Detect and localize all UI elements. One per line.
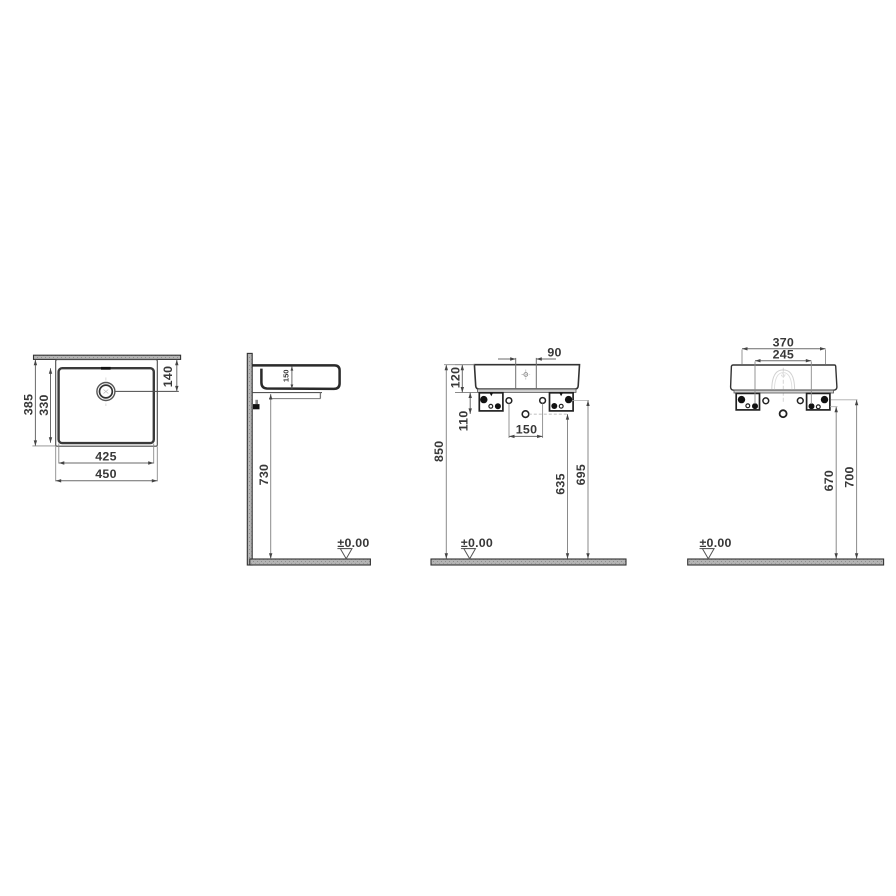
svg-text:700: 700 bbox=[843, 466, 857, 487]
svg-text:695: 695 bbox=[574, 464, 588, 485]
svg-text:140: 140 bbox=[161, 366, 175, 387]
svg-text:330: 330 bbox=[37, 394, 51, 415]
svg-text:90: 90 bbox=[547, 346, 561, 360]
svg-text:450: 450 bbox=[95, 467, 116, 481]
svg-text:245: 245 bbox=[773, 347, 794, 361]
svg-text:110: 110 bbox=[456, 411, 470, 432]
svg-text:150: 150 bbox=[516, 423, 537, 437]
svg-text:385: 385 bbox=[22, 394, 36, 415]
svg-text:730: 730 bbox=[257, 464, 271, 485]
svg-text:670: 670 bbox=[822, 470, 836, 491]
svg-text:635: 635 bbox=[554, 473, 568, 494]
svg-text:150: 150 bbox=[282, 369, 291, 382]
svg-text:120: 120 bbox=[449, 367, 463, 388]
svg-text:425: 425 bbox=[95, 449, 116, 463]
svg-text:850: 850 bbox=[432, 441, 446, 462]
